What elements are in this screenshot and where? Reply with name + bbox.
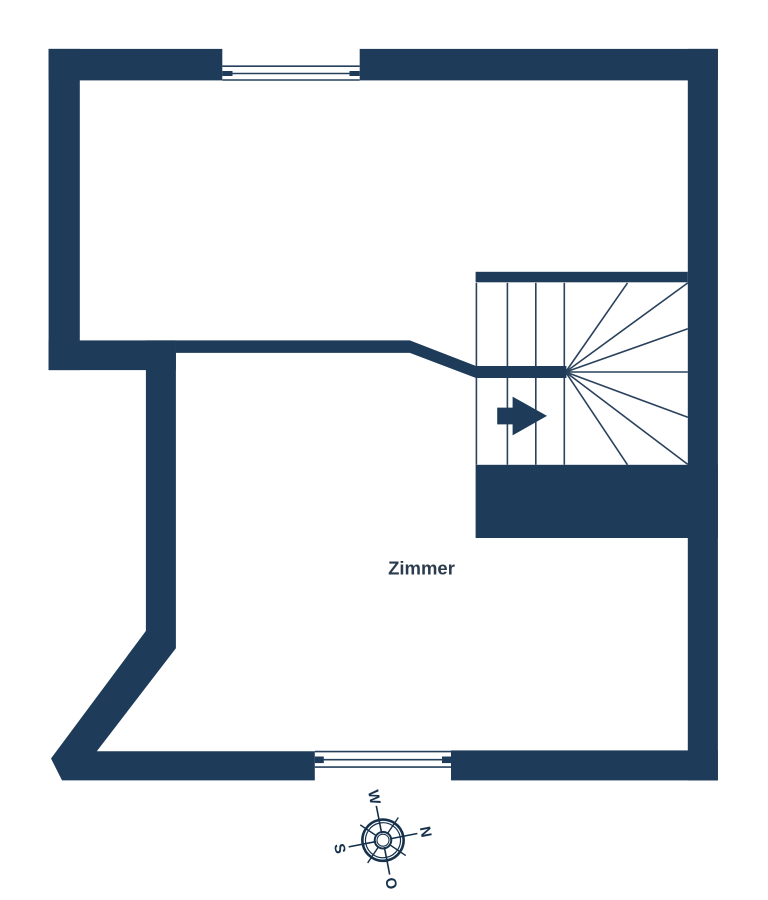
svg-text:Zimmer: Zimmer	[388, 558, 455, 579]
